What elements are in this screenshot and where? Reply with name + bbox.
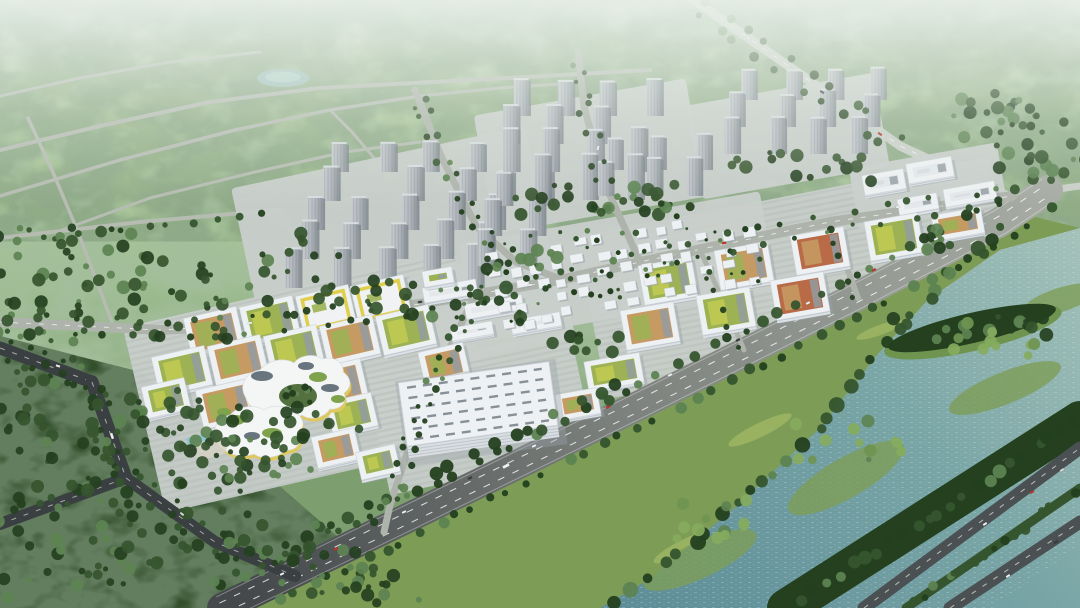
layer-atmosphere	[0, 0, 1080, 608]
aerial-render-viewport: Aerial architectural rendering of a rive…	[0, 0, 1080, 608]
scene-aerial-render	[0, 0, 1080, 608]
haze-overlay	[0, 0, 1080, 608]
